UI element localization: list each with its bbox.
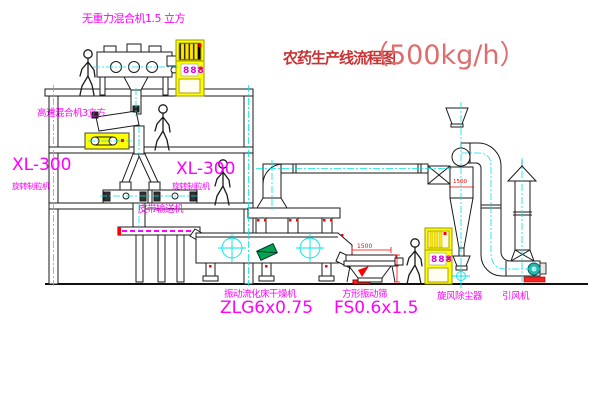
- worker-figure: [80, 50, 95, 95]
- belt-conveyor-unit: [118, 227, 209, 282]
- label-screen-model: FS0.6x1.5: [334, 300, 418, 317]
- label-granulator-right-name: 旋转制粒机: [172, 183, 210, 191]
- vibrating-screen-unit: [344, 255, 403, 284]
- cyclone-vent-cap: [446, 108, 468, 124]
- label-cyclone: 旋风除尘器: [437, 292, 482, 302]
- fluid-bed-dryer-unit: [196, 208, 357, 281]
- dust-pot: [453, 256, 470, 266]
- cabinet-door[interactable]: [428, 268, 448, 282]
- cabinet-top-readout: 888: [183, 67, 205, 76]
- label-dryer-model: ZLG6x0.75: [220, 300, 313, 317]
- worker-figure: [155, 105, 170, 150]
- label-gravity-mixer: 无重力混合机1.5 立方: [82, 13, 185, 24]
- process-flow-diagram: 农药生产线流程图 （500kg/h） 无重力混合机1.5 立方 高速混合机3立方…: [0, 0, 600, 403]
- dimension-cyclone: 1500: [453, 180, 467, 186]
- label-high-speed-mixer: 高速混合机3立方: [37, 109, 106, 119]
- gravity-mixer: [97, 44, 177, 114]
- label-granulator-right-model: XL-300: [176, 161, 235, 178]
- fan-base: [524, 277, 545, 282]
- worker-figure: [407, 239, 422, 284]
- y-chute: [122, 154, 158, 182]
- diagram-capacity: （500kg/h）: [362, 42, 527, 69]
- label-belt-conveyor: 皮带输送机: [138, 205, 183, 215]
- cabinet-ground-readout: 888: [431, 256, 453, 265]
- dryer-exhaust-duct: [257, 164, 450, 208]
- label-granulator-left-model: XL-300: [12, 157, 71, 174]
- dimension-screen: 1500: [357, 244, 372, 250]
- label-fan: 引风机: [502, 292, 529, 302]
- label-granulator-left-name: 旋转制粒机: [12, 183, 50, 191]
- cabinet-door[interactable]: [179, 79, 200, 93]
